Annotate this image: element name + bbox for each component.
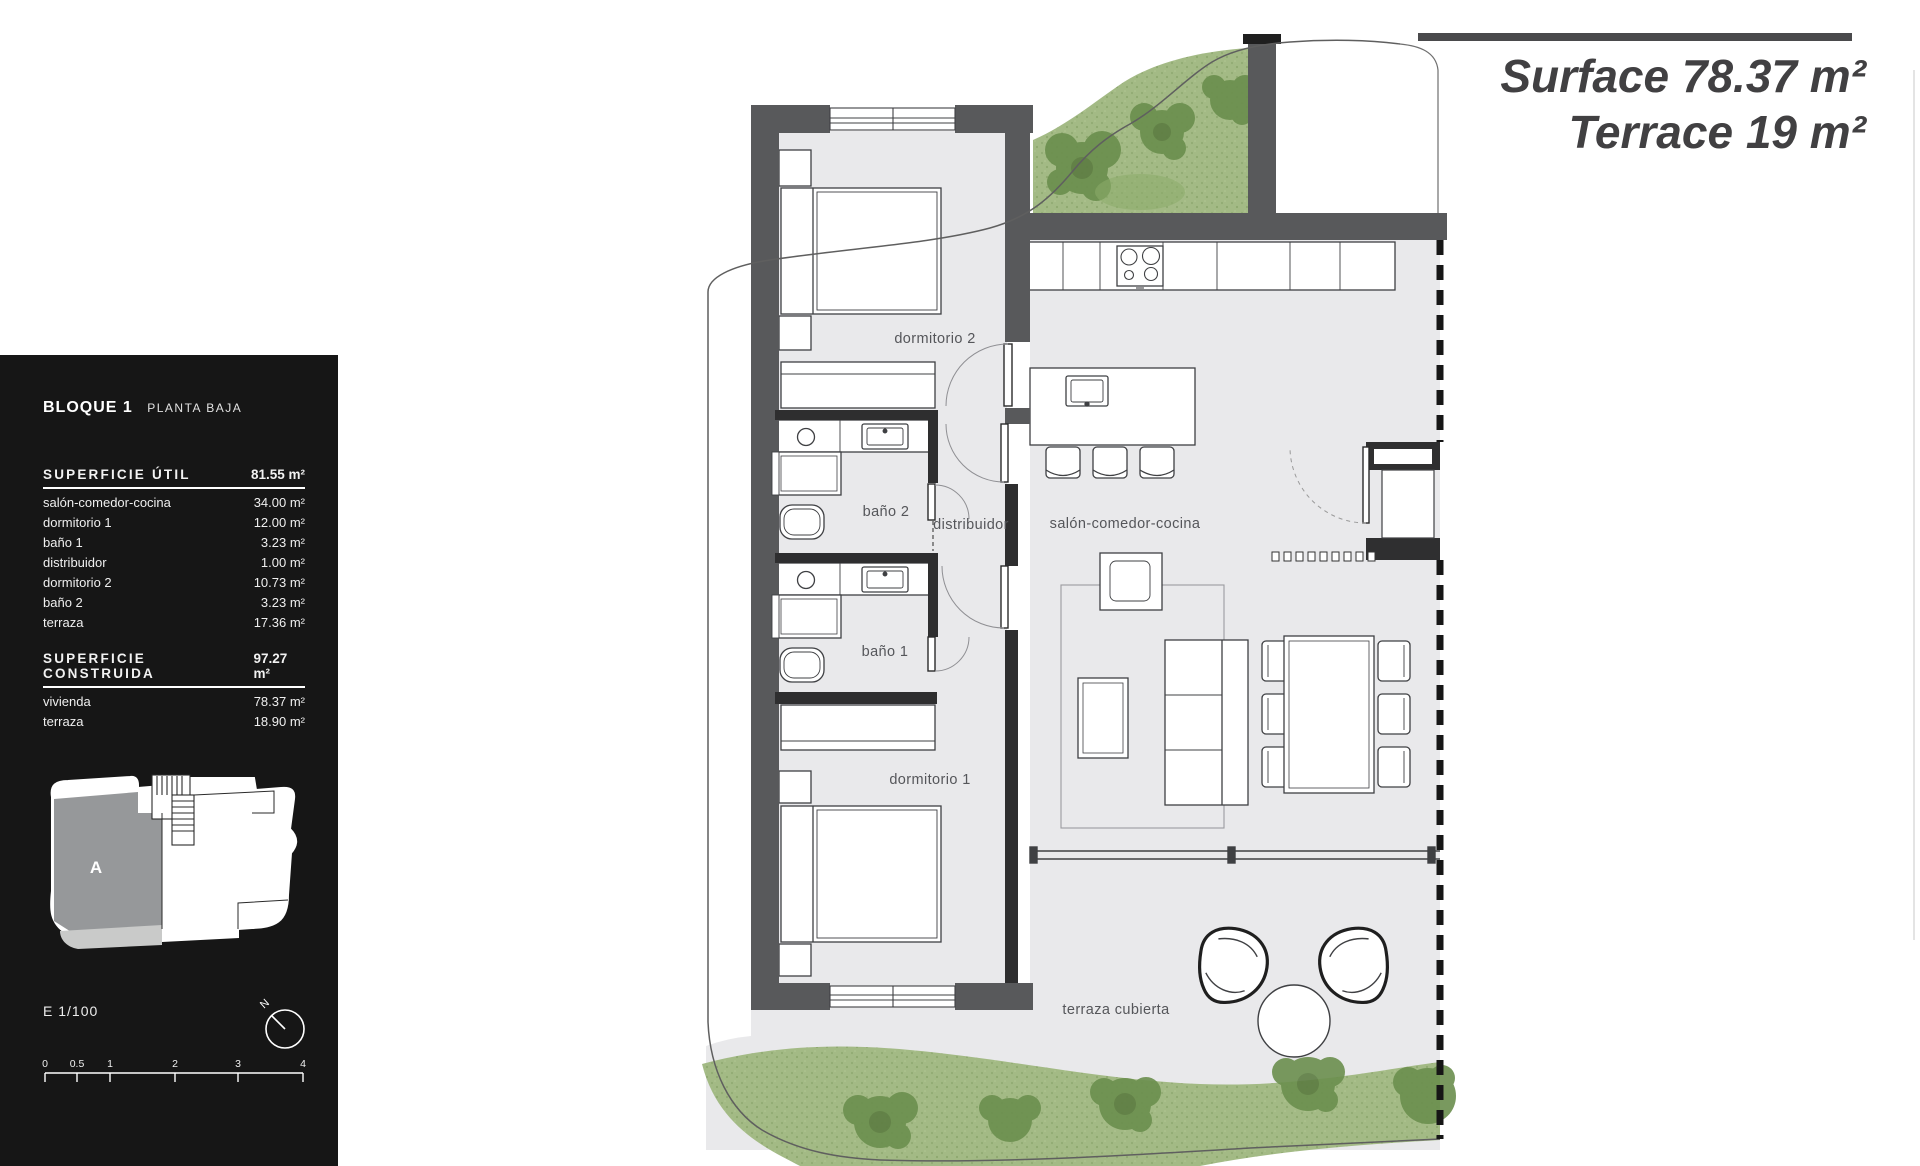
room-label-terraza: terraza cubierta: [1062, 1002, 1169, 1018]
built-area-table: SUPERFICIE CONSTRUIDA 97.27 m² vivienda7…: [43, 651, 305, 732]
floorplan-page: dormitorio 2 baño 2 distribuidor salón-c…: [0, 0, 1920, 1166]
info-sidebar: BLOQUE 1 PLANTA BAJA SUPERFICIE ÚTIL 81.…: [0, 355, 338, 1166]
kitchen-counter: [1017, 242, 1395, 290]
vent-squares: [1272, 552, 1375, 561]
compass: N: [252, 993, 316, 1057]
useful-area-total: 81.55 m²: [251, 467, 305, 482]
table-row: distribuidor1.00 m²: [43, 553, 305, 573]
block-subtitle: PLANTA BAJA: [147, 401, 242, 415]
surface-value: 78.37 m²: [1682, 50, 1866, 102]
scale-tick-label: 0: [42, 1058, 48, 1070]
wardrobe-dormitorio-2: [781, 362, 935, 408]
scale-bar: 0 0.5 1 2 3 4: [38, 1055, 313, 1089]
terrace-value: 19 m²: [1746, 106, 1866, 158]
room-label-bano-2: baño 2: [863, 504, 910, 520]
table-row: dormitorio 112.00 m²: [43, 513, 305, 533]
room-label-dormitorio-1: dormitorio 1: [889, 772, 970, 788]
built-area-header: SUPERFICIE CONSTRUIDA: [43, 651, 254, 681]
scale-tick-label: 3: [235, 1058, 241, 1070]
table-row: terraza17.36 m²: [43, 613, 305, 633]
window-dormitorio-1: [830, 986, 955, 1007]
key-plan-unit-a: [54, 792, 162, 935]
block-heading: BLOQUE 1 PLANTA BAJA: [43, 399, 242, 417]
room-label-distribuidor: distribuidor: [933, 517, 1009, 533]
key-plan: A: [38, 773, 303, 963]
title-divider-bar: [1418, 33, 1852, 41]
terrace-line: Terrace 19 m²: [1500, 104, 1866, 160]
useful-area-table: SUPERFICIE ÚTIL 81.55 m² salón-comedor-c…: [43, 467, 305, 633]
useful-area-header: SUPERFICIE ÚTIL: [43, 467, 191, 482]
surface-line: Surface 78.37 m²: [1500, 48, 1866, 104]
compass-north-label: N: [258, 997, 272, 1011]
key-plan-unit-label: A: [90, 858, 102, 877]
room-label-salon: salón-comedor-cocina: [1050, 516, 1201, 532]
scale-tick-label: 2: [172, 1058, 178, 1070]
wardrobe-dormitorio-1: [781, 705, 935, 750]
title-block: Surface 78.37 m² Terrace 19 m²: [1500, 48, 1866, 160]
kitchen-island: [1030, 368, 1195, 445]
table-row: baño 23.23 m²: [43, 593, 305, 613]
scale-text: E 1/100: [43, 1003, 98, 1019]
terrace-label: Terrace: [1569, 106, 1734, 158]
window-dormitorio-2: [830, 108, 955, 130]
table-row: dormitorio 210.73 m²: [43, 573, 305, 593]
built-area-total: 97.27 m²: [254, 651, 305, 681]
bar-stools: [1046, 447, 1174, 478]
room-label-dormitorio-2: dormitorio 2: [894, 331, 975, 347]
scale-tick-label: 4: [300, 1058, 306, 1070]
scale-tick-label: 1: [107, 1058, 113, 1070]
block-title: BLOQUE 1: [43, 399, 133, 416]
window-bano-1: [772, 595, 779, 638]
scale-tick-label: 0.5: [70, 1058, 85, 1070]
window-bano-2: [772, 452, 779, 495]
table-row: vivienda78.37 m²: [43, 692, 305, 712]
stove-icon: [1117, 246, 1163, 288]
table-row: salón-comedor-cocina34.00 m²: [43, 493, 305, 513]
surface-label: Surface: [1500, 50, 1669, 102]
room-label-bano-1: baño 1: [862, 644, 909, 660]
compass-needle: [272, 1016, 285, 1029]
table-row: terraza18.90 m²: [43, 712, 305, 732]
dining-set: [1262, 636, 1410, 793]
table-row: baño 13.23 m²: [43, 533, 305, 553]
